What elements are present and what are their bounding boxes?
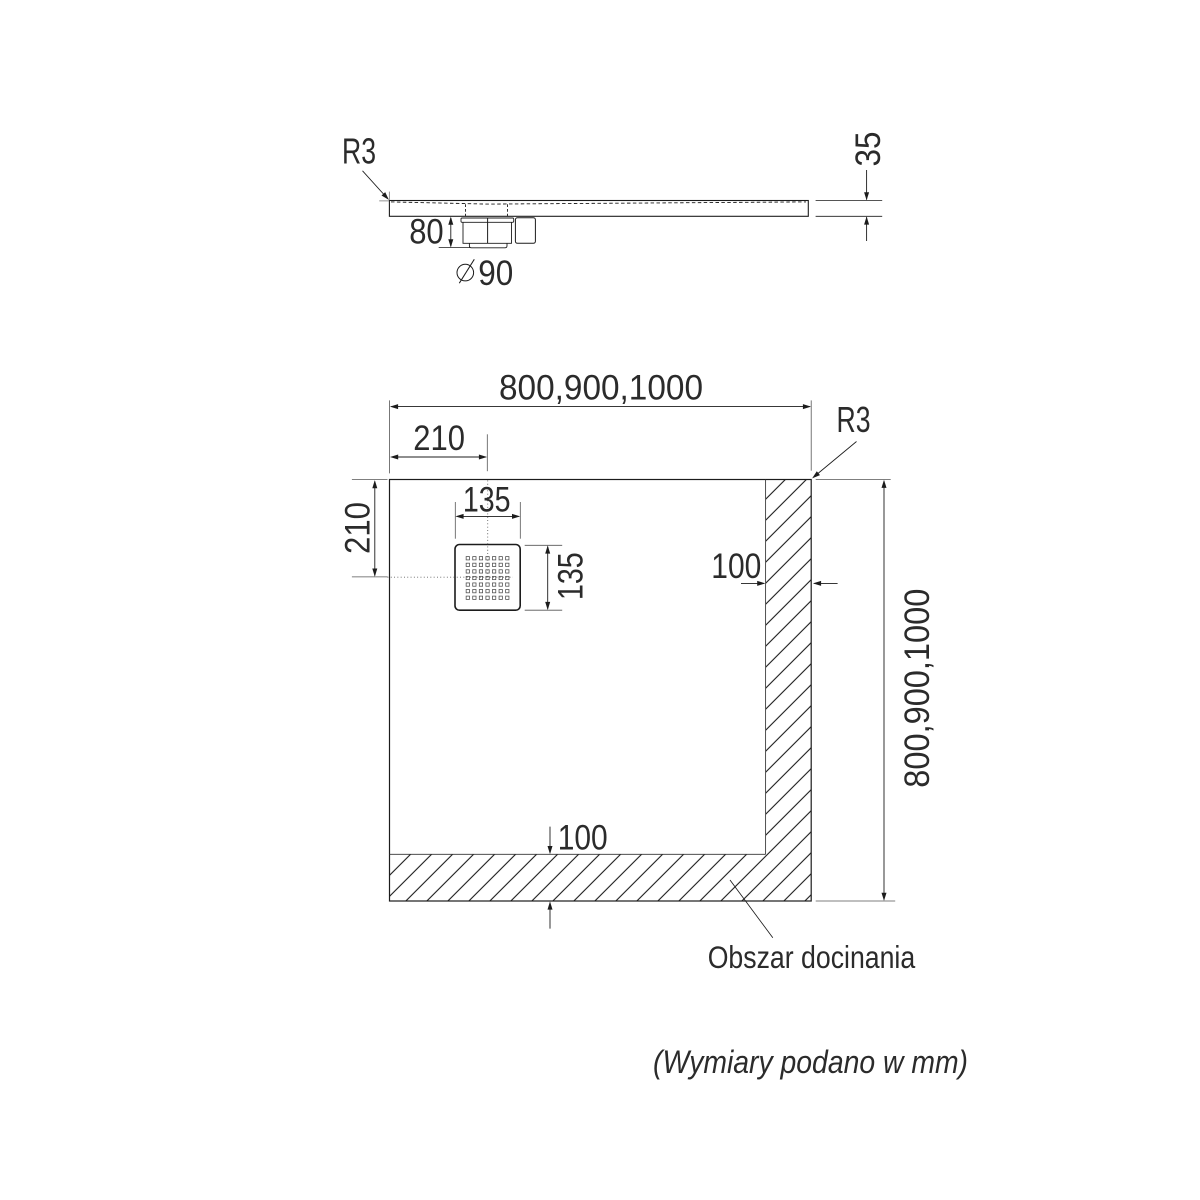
svg-text:135: 135	[463, 481, 511, 520]
svg-text:R3: R3	[342, 131, 376, 172]
svg-text:100: 100	[711, 547, 761, 586]
svg-text:35: 35	[849, 132, 888, 167]
svg-text:135: 135	[552, 552, 591, 600]
svg-text:210: 210	[339, 502, 378, 554]
svg-text:(Wymiary podano w mm): (Wymiary podano w mm)	[653, 1044, 968, 1080]
svg-text:Obszar docinania: Obszar docinania	[708, 939, 916, 975]
svg-text:80: 80	[409, 213, 444, 252]
svg-text:210: 210	[413, 419, 465, 458]
svg-text:800,900,1000: 800,900,1000	[898, 589, 937, 788]
svg-text:90: 90	[478, 254, 513, 293]
svg-text:R3: R3	[837, 399, 871, 440]
svg-text:100: 100	[558, 819, 608, 858]
svg-text:800,900,1000: 800,900,1000	[499, 368, 703, 407]
